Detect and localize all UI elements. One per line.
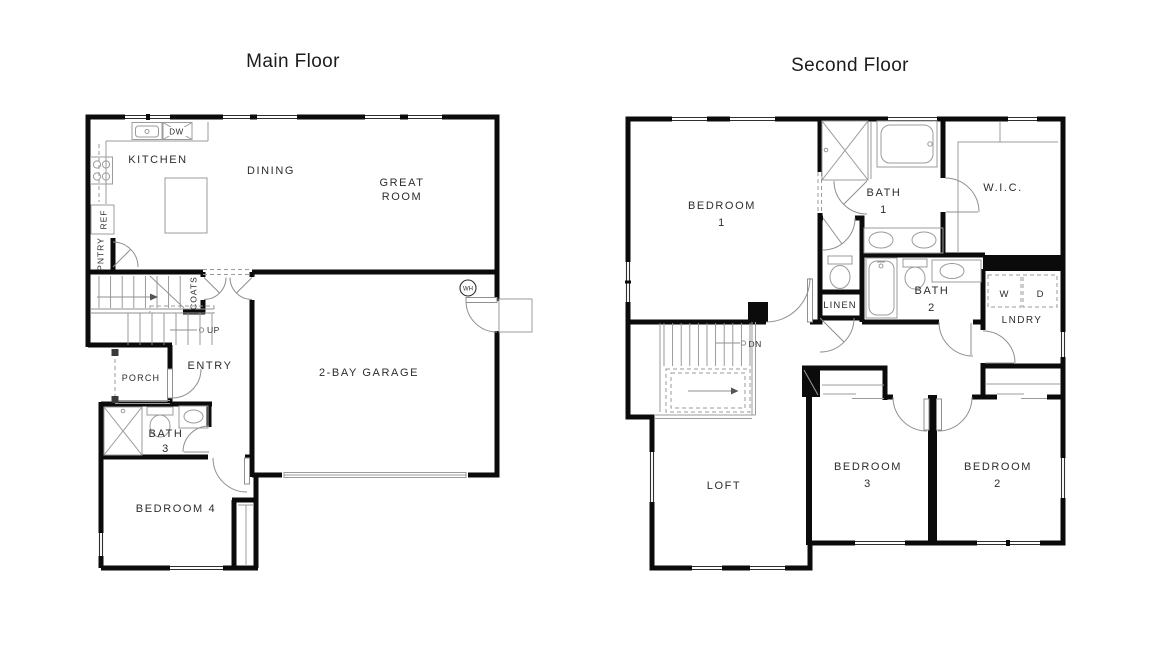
- room-label-loft: LOFT: [707, 480, 742, 492]
- room-label-porch: PORCH: [122, 373, 161, 383]
- room-label-bedroom2: BEDROOM: [964, 461, 1032, 473]
- second-stairs: DN: [654, 322, 762, 419]
- main-floor-plan: Main Floor: [86, 51, 533, 572]
- bedroom1-door: [766, 278, 813, 322]
- stoop: [499, 299, 532, 332]
- coats-door: [204, 278, 226, 300]
- room-label-linen: LINEN: [823, 300, 856, 311]
- bath3-door: [183, 426, 209, 452]
- bath2-door: [939, 322, 973, 356]
- main-floor-walls: [86, 115, 498, 569]
- room-label-entry: ENTRY: [187, 360, 232, 372]
- room-label-bath2: BATH: [915, 285, 950, 297]
- garage-entry-door: [230, 278, 252, 300]
- room-label-bedroom4: BEDROOM 4: [136, 503, 216, 515]
- kitchen-island: [165, 178, 207, 233]
- dishwasher-label: DW: [169, 128, 184, 137]
- refrigerator: REF: [91, 205, 114, 234]
- bath2-vanity: [932, 260, 981, 282]
- main-floor-title: Main Floor: [246, 51, 340, 72]
- room-label-bath3: BATH: [149, 428, 184, 440]
- stair-arrow: [731, 388, 739, 395]
- room-label-wic: W.I.C.: [983, 182, 1023, 194]
- room-label-laundry: LNDRY: [1002, 315, 1043, 326]
- front-door: [168, 369, 202, 398]
- cooktop: [91, 157, 113, 184]
- refrigerator-label: REF: [99, 210, 109, 230]
- wic-door: [945, 178, 979, 212]
- room-label-great-room: GREAT: [379, 177, 424, 189]
- floor-plan-canvas: Main Floor: [0, 0, 1150, 650]
- linen-door: [820, 318, 854, 352]
- room-label-dining: DINING: [247, 165, 295, 177]
- pantry-label: PNTRY: [96, 237, 106, 271]
- laundry-door: [983, 331, 1015, 363]
- room-label-great-room-2: ROOM: [382, 191, 423, 203]
- dishwasher: DW: [163, 123, 192, 140]
- bedroom3-door: [893, 397, 929, 431]
- bath2-tub: [866, 258, 897, 318]
- room-label-bedroom3: BEDROOM: [834, 461, 902, 473]
- room-label-bedroom1: BEDROOM: [688, 200, 756, 212]
- main-floor-labels: KITCHEN DINING GREAT ROOM 2-BAY GARAGE E…: [122, 154, 473, 515]
- wall-notch: [748, 302, 768, 322]
- laundry-chase: [983, 255, 1063, 271]
- bedroom4-closet: [238, 505, 254, 566]
- coats-closet: COATS: [189, 276, 253, 310]
- room-label-bath3-2: 3: [162, 443, 170, 455]
- up-label: UP: [207, 325, 220, 335]
- bath1-toilet-room: [823, 218, 855, 289]
- washer-label: W: [1000, 289, 1009, 300]
- bath1-shower: [822, 121, 871, 214]
- second-floor-title: Second Floor: [791, 55, 909, 76]
- bedroom2-door: [937, 397, 973, 431]
- bath1-vanity: [864, 228, 943, 253]
- dryer-label: D: [1037, 289, 1044, 300]
- room-label-bedroom2-2: 2: [994, 478, 1002, 490]
- bath3-shower: [104, 407, 142, 455]
- window-mullion: [146, 114, 150, 120]
- bedroom3-closet: [822, 385, 884, 399]
- room-label-bedroom1-2: 1: [718, 217, 726, 229]
- stair-railing: [654, 322, 756, 419]
- floor-plan-drawing: Main Floor: [0, 0, 1150, 650]
- kitchen-sink: [132, 123, 162, 140]
- coats-label: COATS: [189, 276, 199, 310]
- second-floor-plan: Second Floor: [625, 55, 1067, 572]
- bedroom4-door: [213, 458, 250, 492]
- cased-opening: [203, 270, 252, 275]
- room-label-garage: 2-BAY GARAGE: [319, 367, 419, 379]
- water-heater-label: WH: [463, 287, 473, 293]
- pantry-door: PNTRY: [96, 237, 139, 271]
- bath1-tub: [877, 121, 937, 167]
- garage-door: [282, 472, 468, 479]
- room-label-bath1: BATH: [867, 187, 902, 199]
- room-label-bath2-2: 2: [928, 302, 936, 314]
- room-label-bedroom3-2: 3: [864, 478, 872, 490]
- room-label-bath1-2: 1: [880, 204, 888, 216]
- room-label-kitchen: KITCHEN: [128, 154, 187, 166]
- bath3-vanity: [179, 406, 208, 428]
